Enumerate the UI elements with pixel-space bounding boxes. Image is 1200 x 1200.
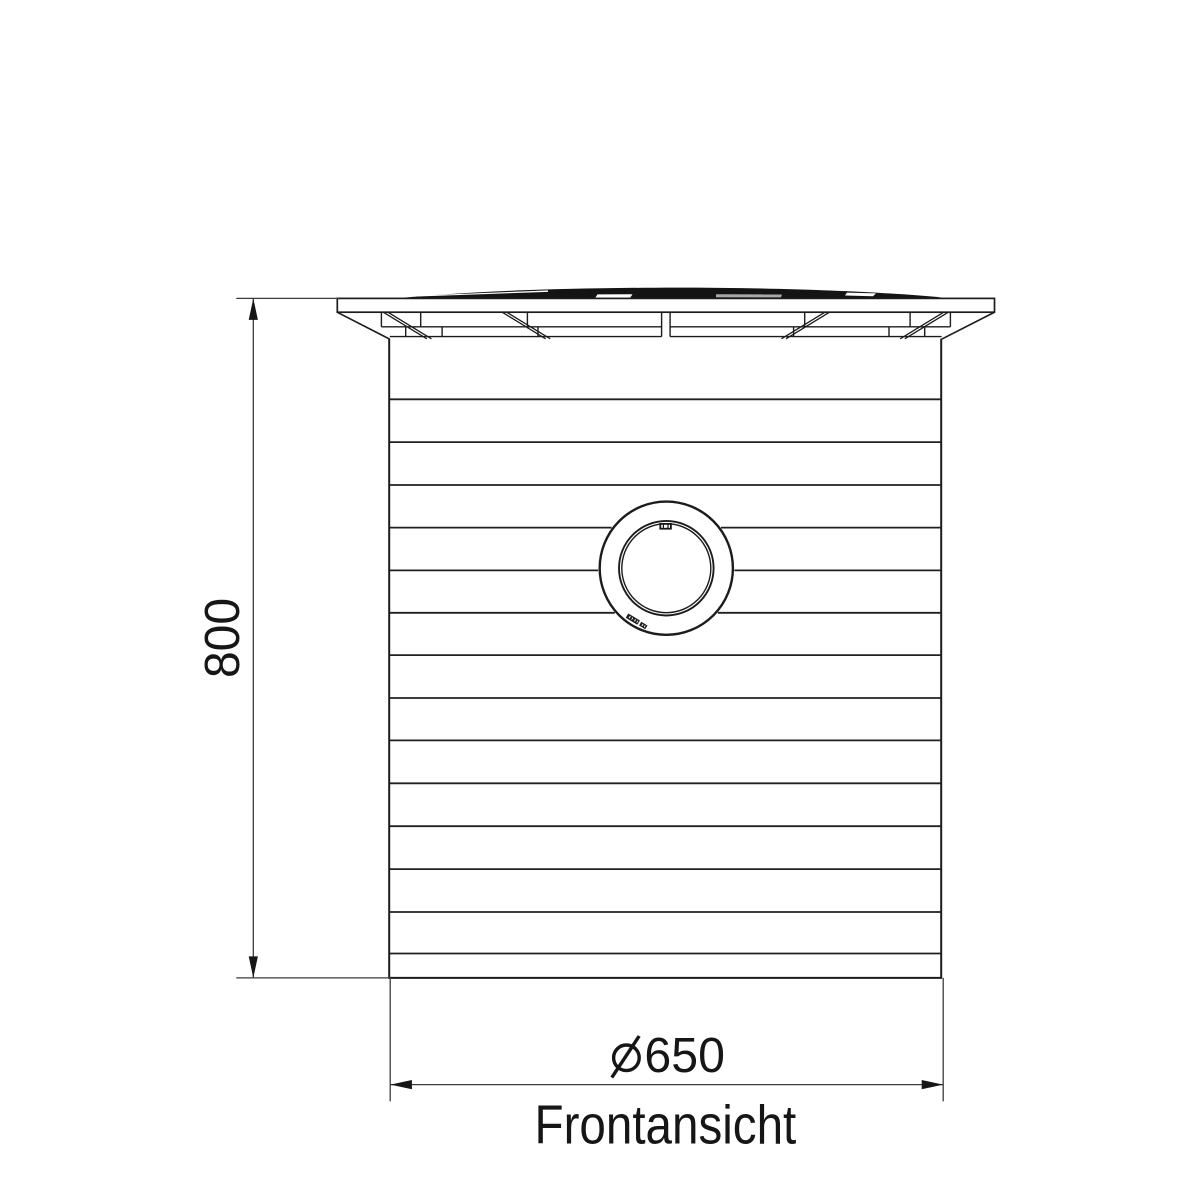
svg-text:Frontansicht: Frontansicht [535,1094,797,1155]
svg-text:650: 650 [644,1028,725,1083]
svg-text:800: 800 [195,598,250,678]
